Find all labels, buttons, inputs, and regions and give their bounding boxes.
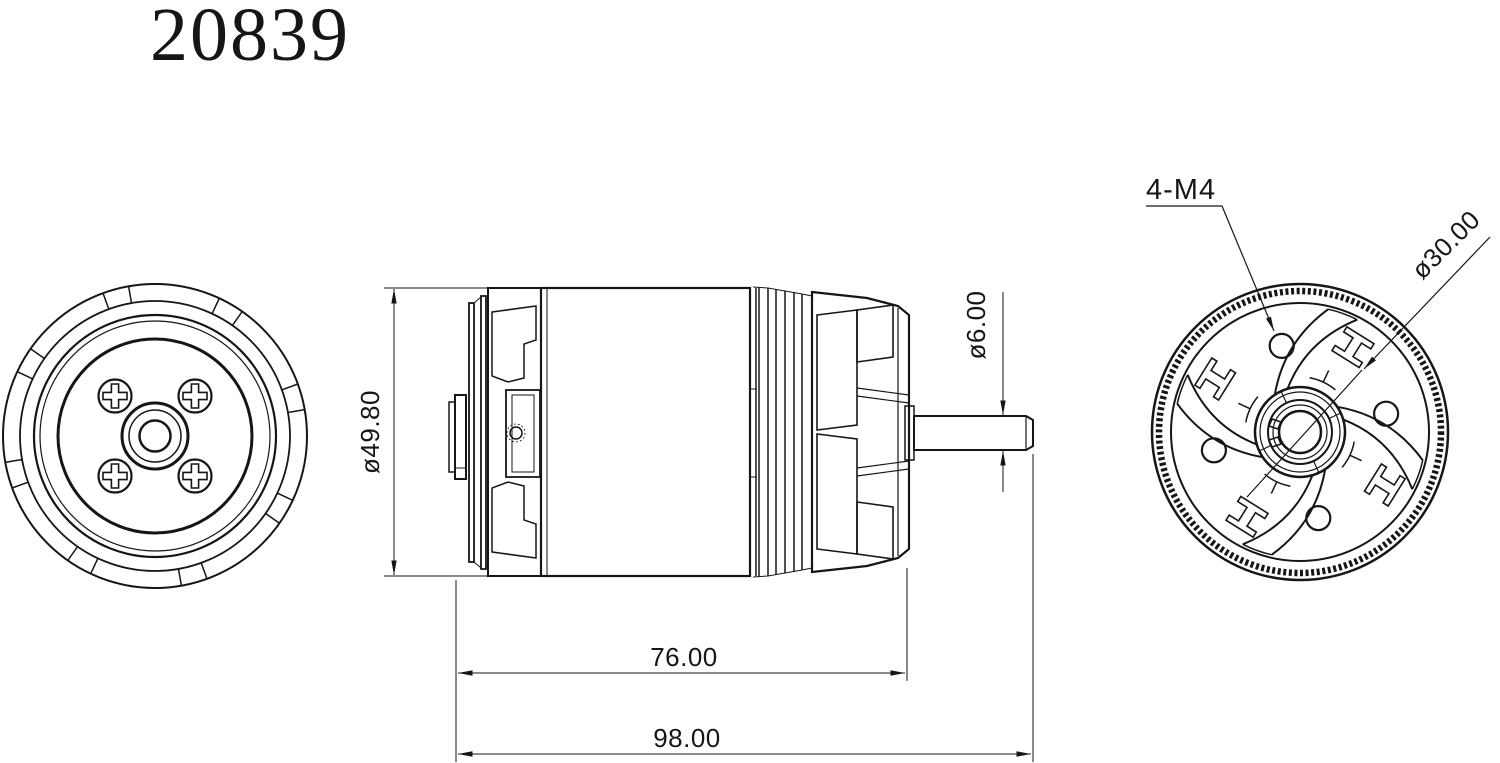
side-view: ø49.80 ø6.00 76.00 98.00	[355, 287, 1033, 762]
dim-shaft-diameter: ø6.00	[961, 291, 1003, 493]
dim-overall-length: 98.00	[456, 454, 1033, 762]
dim-label-body-length: 76.00	[650, 642, 718, 672]
shaft-circlip-tab	[1269, 419, 1281, 429]
side-front-plates	[469, 296, 486, 569]
rear-outer-circle	[1152, 284, 1448, 580]
front-case-circle	[34, 315, 276, 557]
phillips-screw-icon	[99, 460, 132, 493]
side-cooling-ribs	[753, 287, 812, 577]
front-view	[3, 284, 307, 588]
dim-label-overall-length: 98.00	[653, 723, 721, 753]
front-mounting-screws	[99, 380, 212, 493]
rear-vent-ibeam-detail	[1332, 327, 1374, 368]
front-shaft-hub	[122, 403, 188, 469]
side-front-endcap	[488, 288, 541, 576]
dim-label-body-diameter: ø49.80	[355, 390, 385, 474]
front-case-inner-circle	[40, 321, 270, 551]
side-rear-bell	[812, 292, 909, 572]
drawing-sheet: 20839	[0, 0, 1500, 763]
dim-label-shaft-diameter: ø6.00	[961, 291, 991, 360]
bell-top-vent	[817, 310, 857, 430]
anno-label-mounting-holes: 4-M4	[1146, 174, 1216, 206]
bell-bottom-vent	[817, 434, 857, 554]
phillips-screw-icon	[179, 380, 212, 413]
anno-mounting-holes: 4-M4	[1146, 174, 1274, 331]
dim-body-length: 76.00	[458, 568, 907, 681]
front-endcap-top-vent	[492, 306, 536, 382]
front-outer-rim-circle	[3, 284, 307, 588]
anno-label-bolt-circle: ø30.00	[1405, 204, 1486, 285]
side-stator-can	[541, 288, 756, 576]
side-shaft	[905, 406, 1033, 460]
rear-hub	[1255, 387, 1345, 477]
front-rotor-face-circle	[58, 339, 252, 533]
technical-drawing-canvas: ø49.80 ø6.00 76.00 98.00	[0, 0, 1500, 763]
front-rim-knurl-tabs	[5, 286, 304, 585]
phillips-screw-icon	[179, 460, 212, 493]
front-endcap-boss	[506, 390, 540, 477]
phillips-screw-icon	[99, 380, 132, 413]
rear-view: 4-M4 ø30.00	[1146, 174, 1490, 580]
side-front-hub	[449, 395, 466, 479]
front-rim-inner-circle	[20, 301, 290, 571]
rear-mounting-hole	[1374, 402, 1398, 426]
front-endcap-bottom-vent	[492, 482, 536, 558]
dim-body-diameter: ø49.80	[355, 288, 520, 576]
